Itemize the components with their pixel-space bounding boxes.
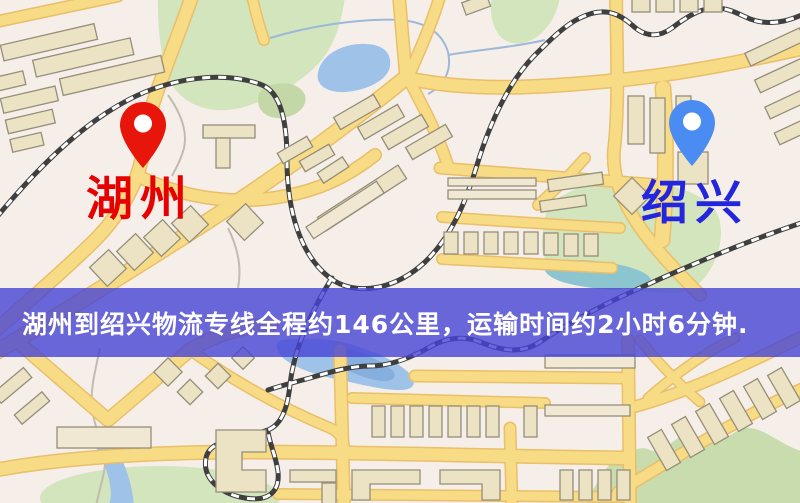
origin-pin-icon[interactable]: [120, 102, 166, 168]
route-info-text: 湖州到绍兴物流专线全程约146公里，运输时间约2小时6分钟.: [0, 305, 748, 341]
map-screenshot: 湖州 绍兴 湖州到绍兴物流专线全程约146公里，运输时间约2小时6分钟.: [0, 0, 800, 503]
destination-city-label: 绍兴: [641, 180, 749, 227]
map-canvas[interactable]: [0, 0, 800, 503]
route-info-banner: 湖州到绍兴物流专线全程约146公里，运输时间约2小时6分钟.: [0, 288, 800, 357]
origin-city-label: 湖州: [86, 176, 194, 223]
